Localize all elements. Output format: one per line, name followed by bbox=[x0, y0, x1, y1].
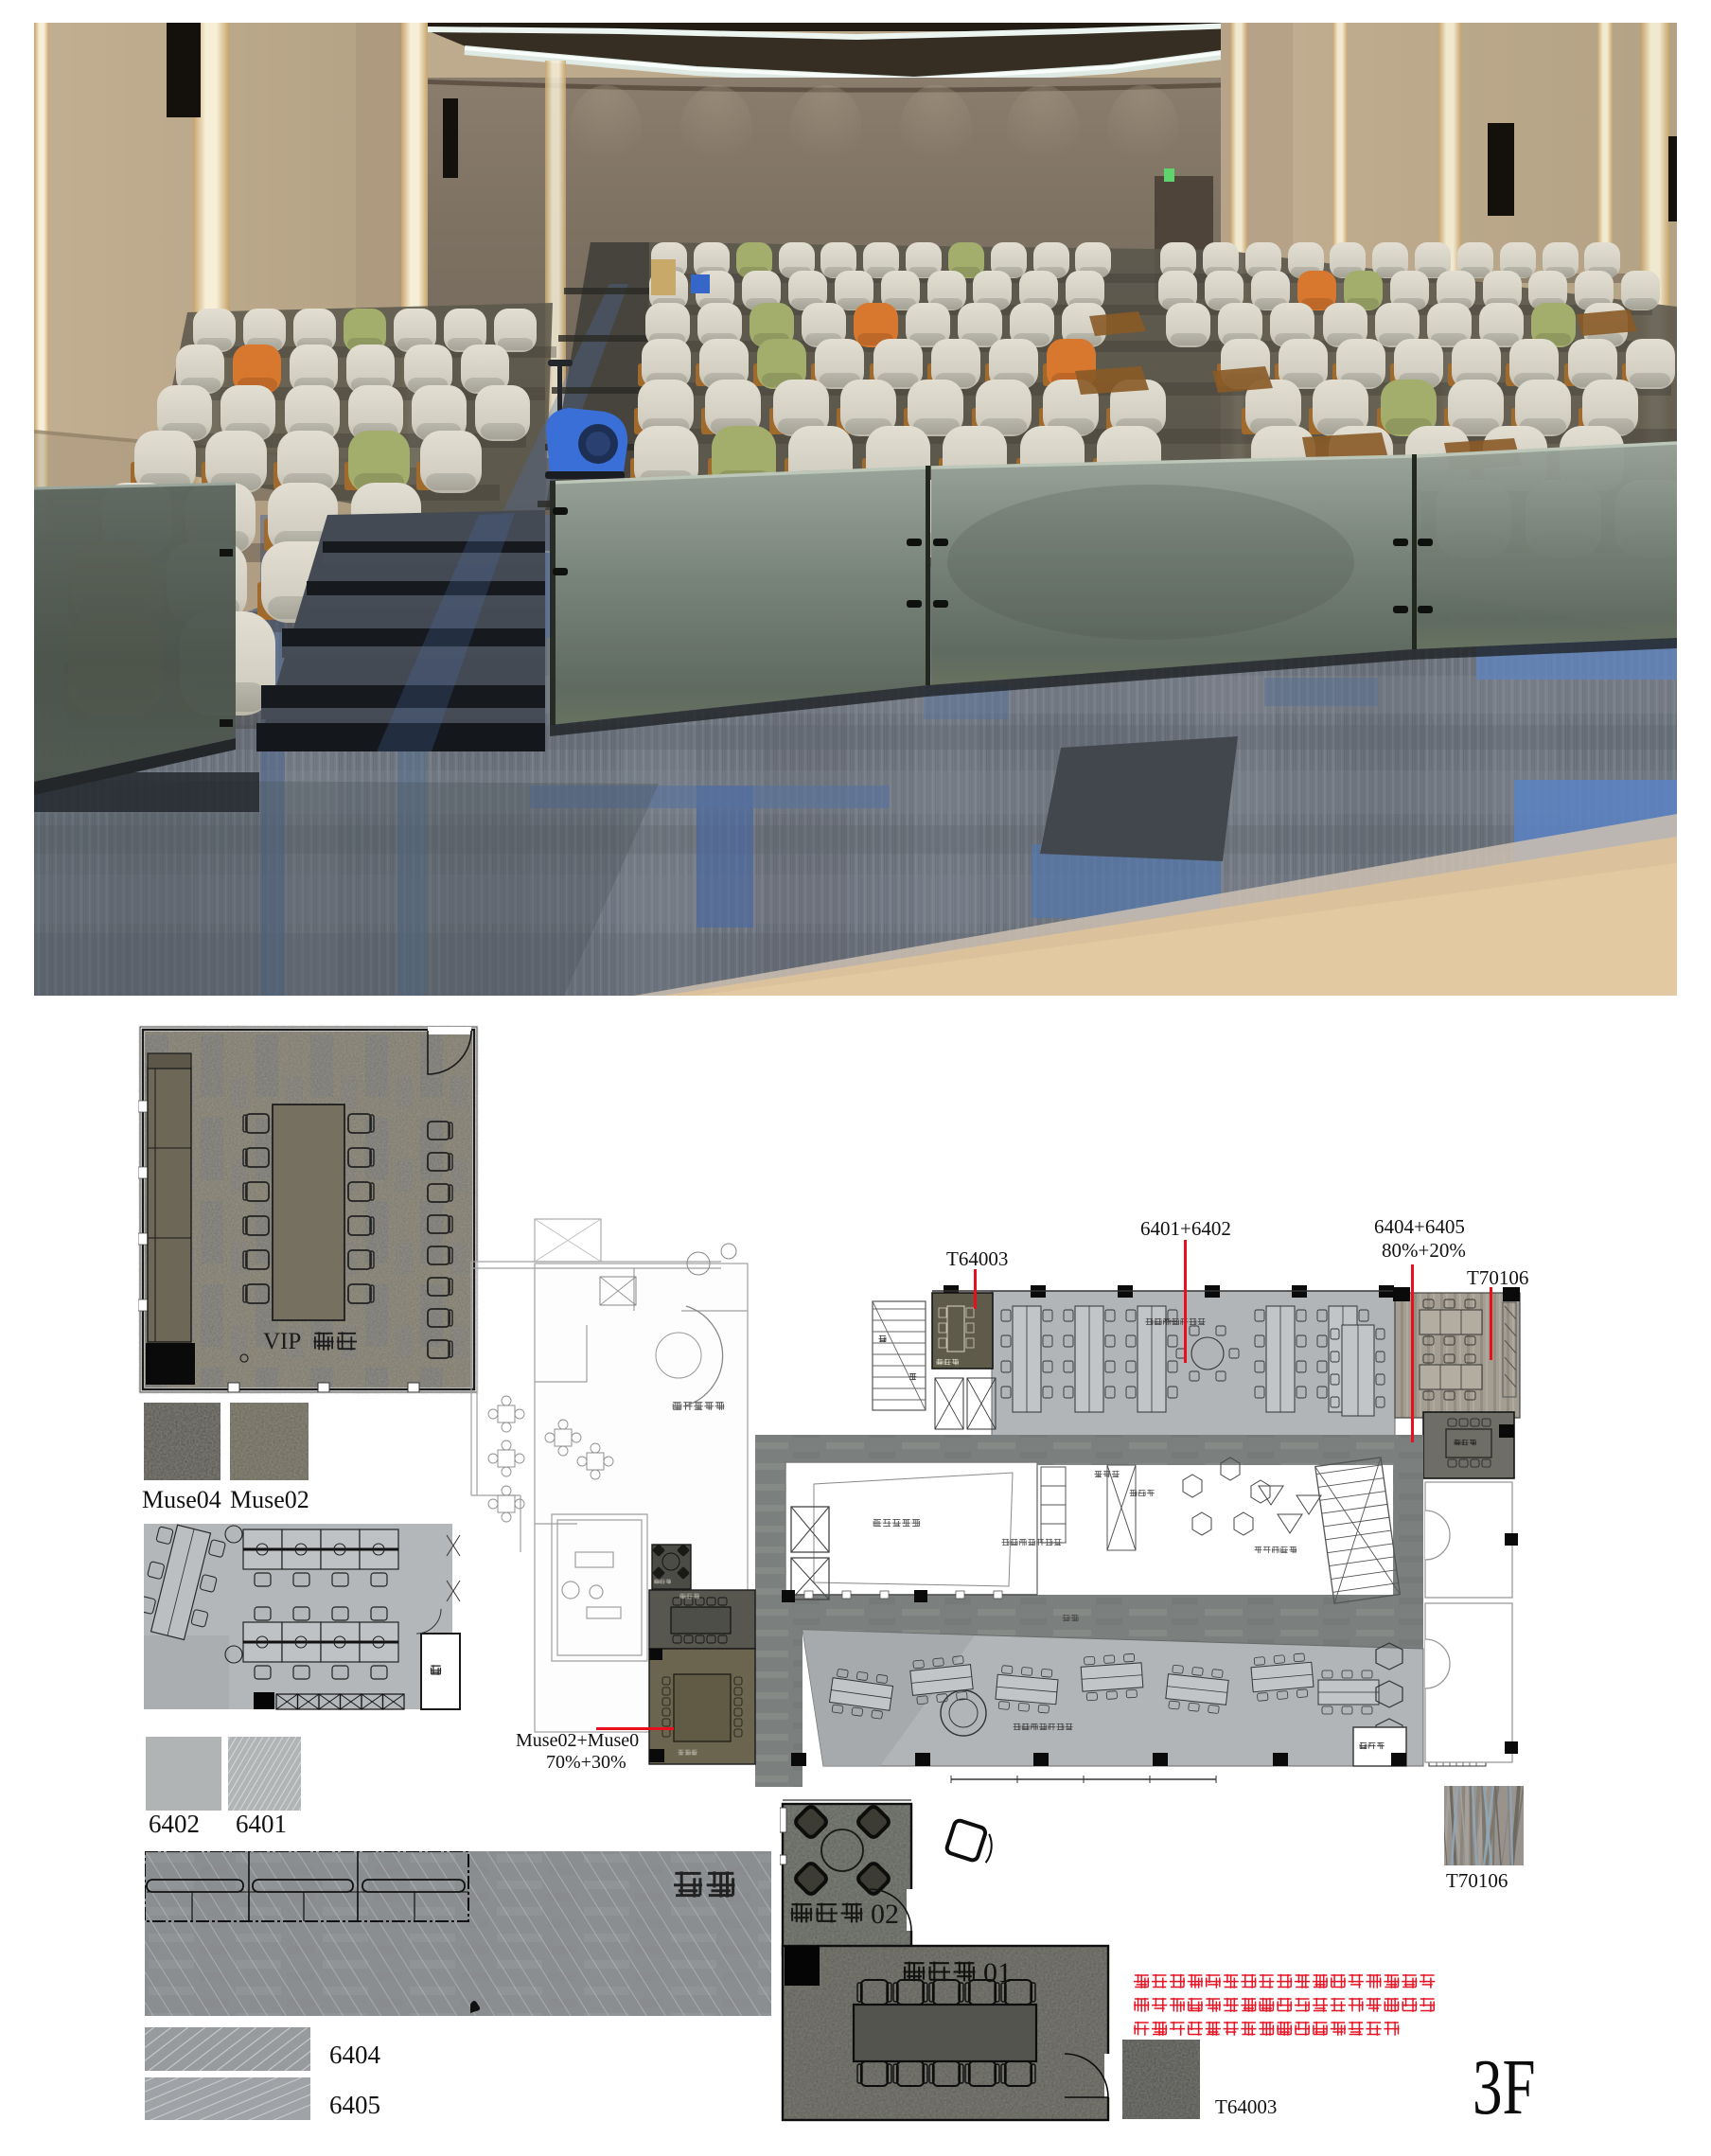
svg-text:02: 02 bbox=[871, 1899, 899, 1930]
svg-text:01: 01 bbox=[983, 1957, 1012, 1988]
svg-text:VIP: VIP bbox=[263, 1329, 301, 1354]
